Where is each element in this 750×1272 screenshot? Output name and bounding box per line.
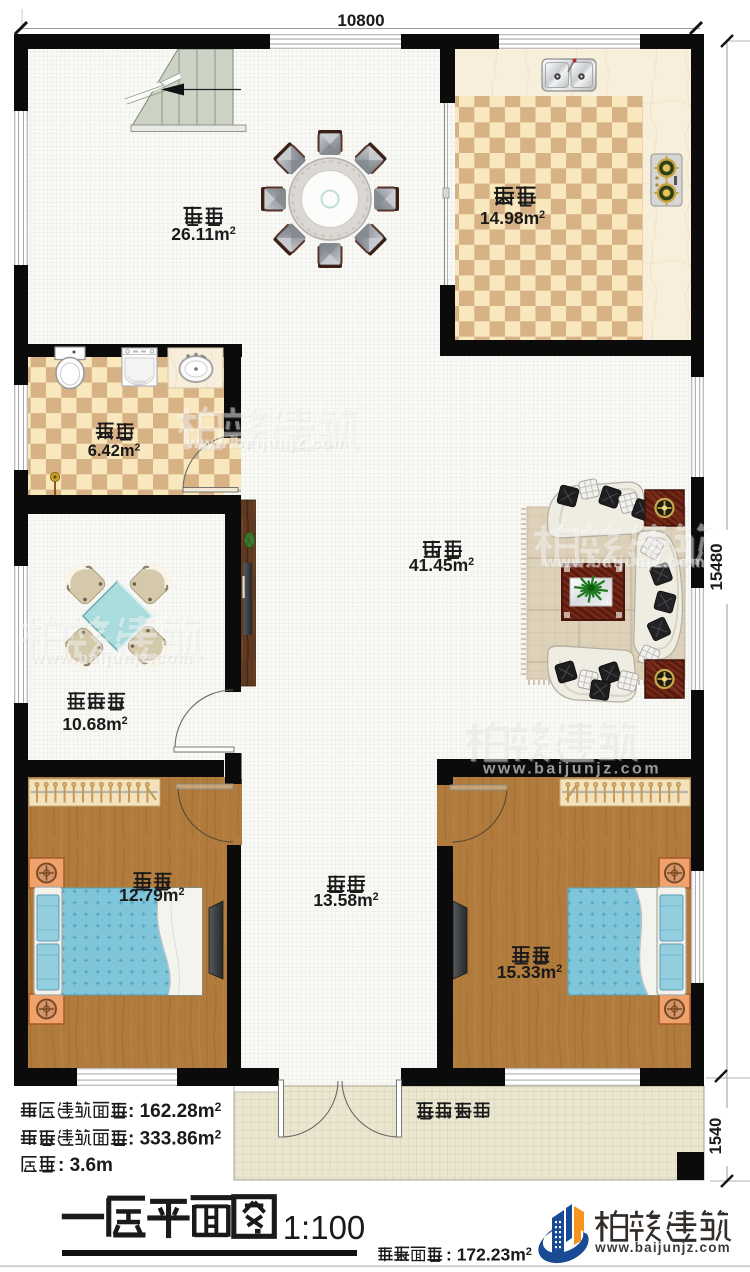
svg-text:: 333.86m2: : 333.86m2 (128, 1128, 222, 1150)
svg-text:1540: 1540 (707, 1118, 725, 1155)
svg-text:www.baijunjz.com: www.baijunjz.com (30, 650, 193, 667)
svg-text:10.68m2: 10.68m2 (62, 714, 127, 734)
svg-text:15.33m2: 15.33m2 (497, 962, 562, 982)
svg-text:: 162.28m2: : 162.28m2 (128, 1100, 222, 1122)
svg-text:www.baijunjz.com: www.baijunjz.com (543, 554, 706, 571)
svg-text:: 3.6m: : 3.6m (58, 1155, 113, 1176)
svg-text:13.58m2: 13.58m2 (313, 890, 378, 910)
svg-text:www.baijunjz.com: www.baijunjz.com (186, 435, 349, 452)
svg-text:15480: 15480 (707, 543, 726, 590)
svg-text:10800: 10800 (337, 11, 384, 30)
svg-text:12.79m2: 12.79m2 (119, 885, 184, 905)
svg-text:6.42m2: 6.42m2 (88, 442, 141, 460)
svg-text:www.baijunjz.com: www.baijunjz.com (482, 761, 661, 778)
svg-text:41.45m2: 41.45m2 (409, 555, 474, 575)
svg-text:: 172.23m2: : 172.23m2 (446, 1245, 532, 1265)
svg-text:14.98m2: 14.98m2 (480, 208, 545, 228)
svg-text:1:100: 1:100 (283, 1209, 366, 1246)
svg-text:26.11m2: 26.11m2 (171, 224, 235, 244)
svg-text:www.baijunjz.com: www.baijunjz.com (594, 1240, 731, 1255)
